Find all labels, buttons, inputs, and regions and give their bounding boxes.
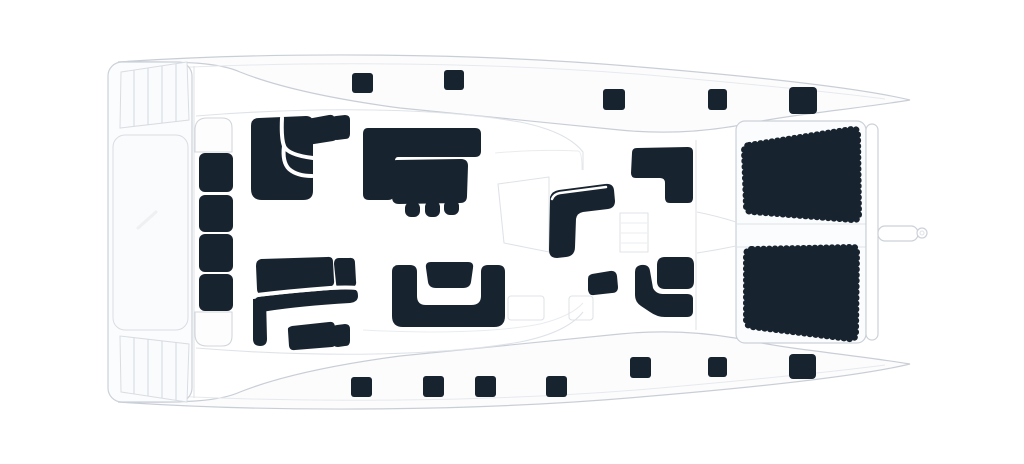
bench-cushion	[199, 274, 233, 311]
saloon-sofa-end-bottom	[253, 298, 267, 346]
transom-crossbar	[866, 124, 878, 340]
deck-hatch	[546, 376, 567, 397]
bench-cushion	[199, 195, 233, 232]
deck-hatch	[708, 89, 727, 110]
deck-hatch	[630, 357, 651, 378]
deck-hatch	[789, 87, 817, 114]
saloon-side-cushion-bottom	[288, 322, 336, 350]
passerelle-ring	[917, 228, 927, 238]
deck-hatch	[423, 376, 444, 397]
bench-cushion	[199, 153, 233, 192]
deck-hatch	[603, 89, 625, 110]
sunpad-starboard	[744, 129, 859, 220]
foredeck-seatback-top	[195, 118, 232, 152]
saloon-sofa-arm-bottom	[334, 258, 356, 288]
catamaran-deck-plan-page: { "meta": { "type": "catamaran-deck-plan…	[0, 0, 1024, 464]
saloon-side-tile-top	[332, 115, 350, 140]
deck-plan-figure	[0, 0, 1024, 464]
sunpad-port	[746, 247, 857, 339]
passerelle-plank	[878, 226, 918, 241]
helm-console-outline	[498, 177, 549, 252]
saloon-side-tile-bottom	[333, 324, 350, 347]
galley-stool	[405, 202, 420, 217]
cockpit-to-aft-passage-top	[697, 212, 736, 222]
cockpit-locker-outline-right	[569, 296, 593, 320]
deck-hatch	[708, 357, 727, 377]
cabin-door-line	[495, 150, 582, 170]
foredeck-bench	[199, 153, 233, 311]
cockpit-to-aft-passage-bottom	[697, 246, 736, 253]
cockpit-bench-forward	[631, 147, 693, 203]
companionway-steps	[620, 213, 648, 252]
deck-hatch	[351, 377, 372, 397]
deck-hatch	[444, 70, 464, 90]
trampoline-center-panel	[113, 135, 188, 330]
foredeck-seatback-bottom	[195, 312, 232, 346]
deck-hatch	[352, 73, 373, 93]
trampoline-forward-bottom	[120, 336, 189, 402]
bench-cushion	[199, 234, 233, 272]
trampoline-forward-top	[120, 62, 189, 128]
galley-table	[391, 159, 468, 204]
cockpit-locker-outline-left	[508, 296, 544, 320]
cockpit-stool	[588, 271, 618, 295]
cockpit-seat-aft	[657, 257, 694, 289]
helm-seat	[549, 184, 615, 258]
dinette-table	[426, 262, 473, 288]
deck-hatch	[789, 354, 816, 379]
deck-hatch	[475, 376, 496, 397]
